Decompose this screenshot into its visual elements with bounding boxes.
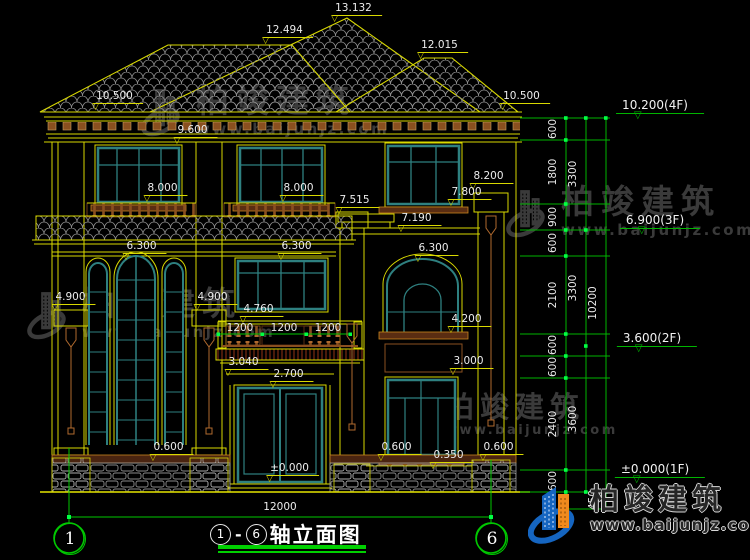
left-arched-windows	[86, 252, 186, 445]
right-arch-window	[379, 254, 468, 372]
cad-canvas: 柏竣建筑 www.baijunjz.com 柏竣建筑 www.baijunjz.…	[0, 0, 750, 560]
title-underline	[218, 545, 366, 549]
right-dimension-chains	[520, 116, 610, 511]
axis-bubble-right: 6	[476, 523, 508, 555]
beam-lines	[52, 252, 336, 256]
title-axis-start: 1	[210, 524, 231, 545]
brand-logo-block: 柏竣建筑 www.baijunjz.com	[528, 484, 750, 546]
balcony	[216, 321, 364, 374]
roofs	[40, 18, 518, 112]
center-second-floor-window	[235, 258, 328, 312]
title-axis-end: 6	[246, 524, 267, 545]
right-first-floor-window	[379, 377, 464, 465]
axis-bubble-left: 1	[54, 523, 86, 555]
entrance-door	[228, 385, 332, 488]
title-underline-thin	[218, 551, 366, 553]
title-dash: -	[235, 525, 242, 544]
brand-name: 柏竣建筑	[590, 484, 750, 514]
brand-logo-icon	[528, 484, 582, 546]
elevation-drawing	[0, 0, 750, 560]
brand-url: www.baijunjz.com	[590, 516, 750, 534]
mid-roof	[32, 216, 356, 244]
main-cornice	[44, 112, 522, 142]
